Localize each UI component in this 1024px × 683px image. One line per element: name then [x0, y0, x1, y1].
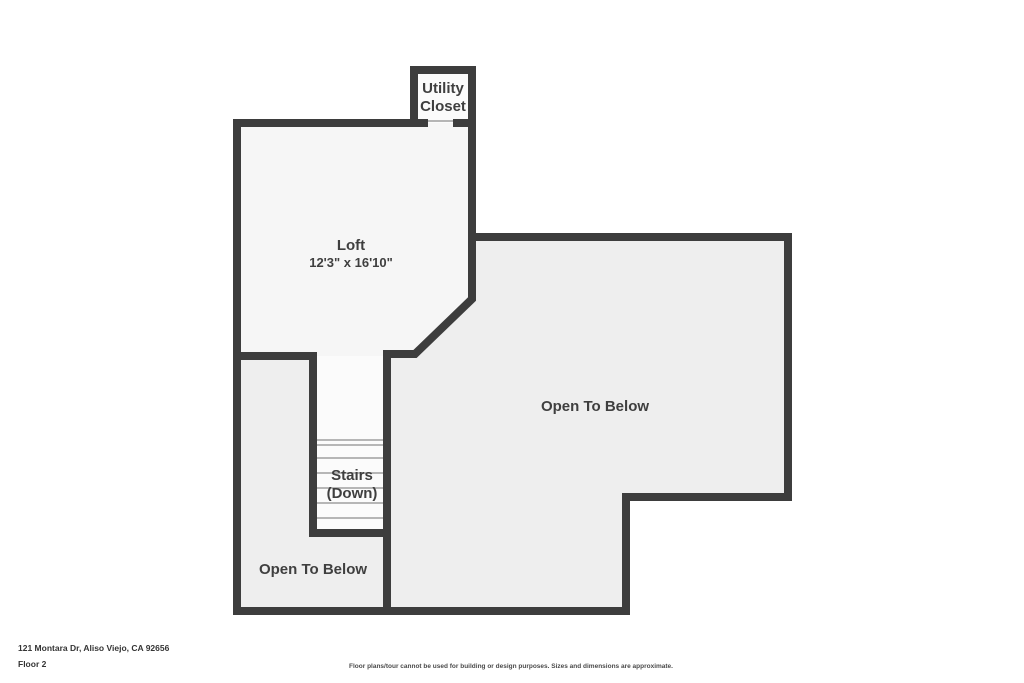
utility-closet-label: Utility Closet — [420, 80, 466, 116]
utility-closet-label-line2: Closet — [420, 98, 466, 116]
loft-room-name: Loft — [309, 237, 393, 255]
open-to-below-right-label: Open To Below — [541, 398, 649, 416]
floor-number-text: Floor 2 — [18, 659, 46, 669]
stairs-label-line2: (Down) — [327, 485, 378, 503]
stairs-label: Stairs (Down) — [327, 467, 378, 503]
utility-closet-label-line1: Utility — [420, 80, 466, 98]
loft-dimensions: 12'3" x 16'10" — [309, 255, 393, 271]
disclaimer-text: Floor plans/tour cannot be used for buil… — [349, 663, 673, 670]
open-to-below-left-label: Open To Below — [259, 561, 367, 579]
loft-label: Loft 12'3" x 16'10" — [309, 237, 393, 271]
address-text: 121 Montara Dr, Aliso Viejo, CA 92656 — [18, 643, 169, 653]
floorplan-drawing — [0, 0, 1024, 683]
stairs-label-line1: Stairs — [327, 467, 378, 485]
